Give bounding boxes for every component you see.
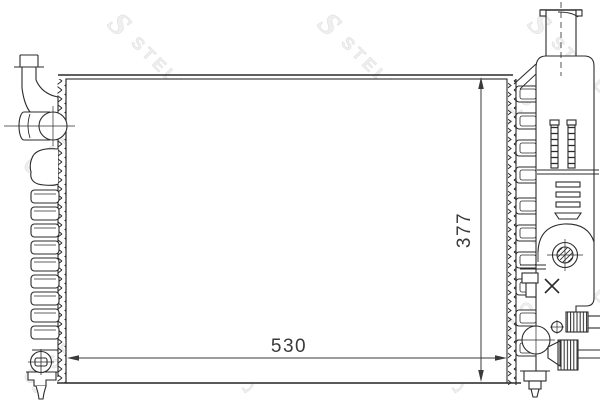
tank-bulge — [30, 149, 58, 186]
tank-rib-stack — [31, 190, 59, 339]
width-dimension-label: 530 — [271, 336, 307, 357]
radiator-diagram-canvas: S STELLOX S STELLOX — [0, 0, 600, 400]
right-crimp-zigzag — [508, 79, 516, 385]
height-dimension-label: 377 — [454, 212, 475, 248]
radiator-line-drawing: S STELLOX S STELLOX — [0, 0, 600, 400]
